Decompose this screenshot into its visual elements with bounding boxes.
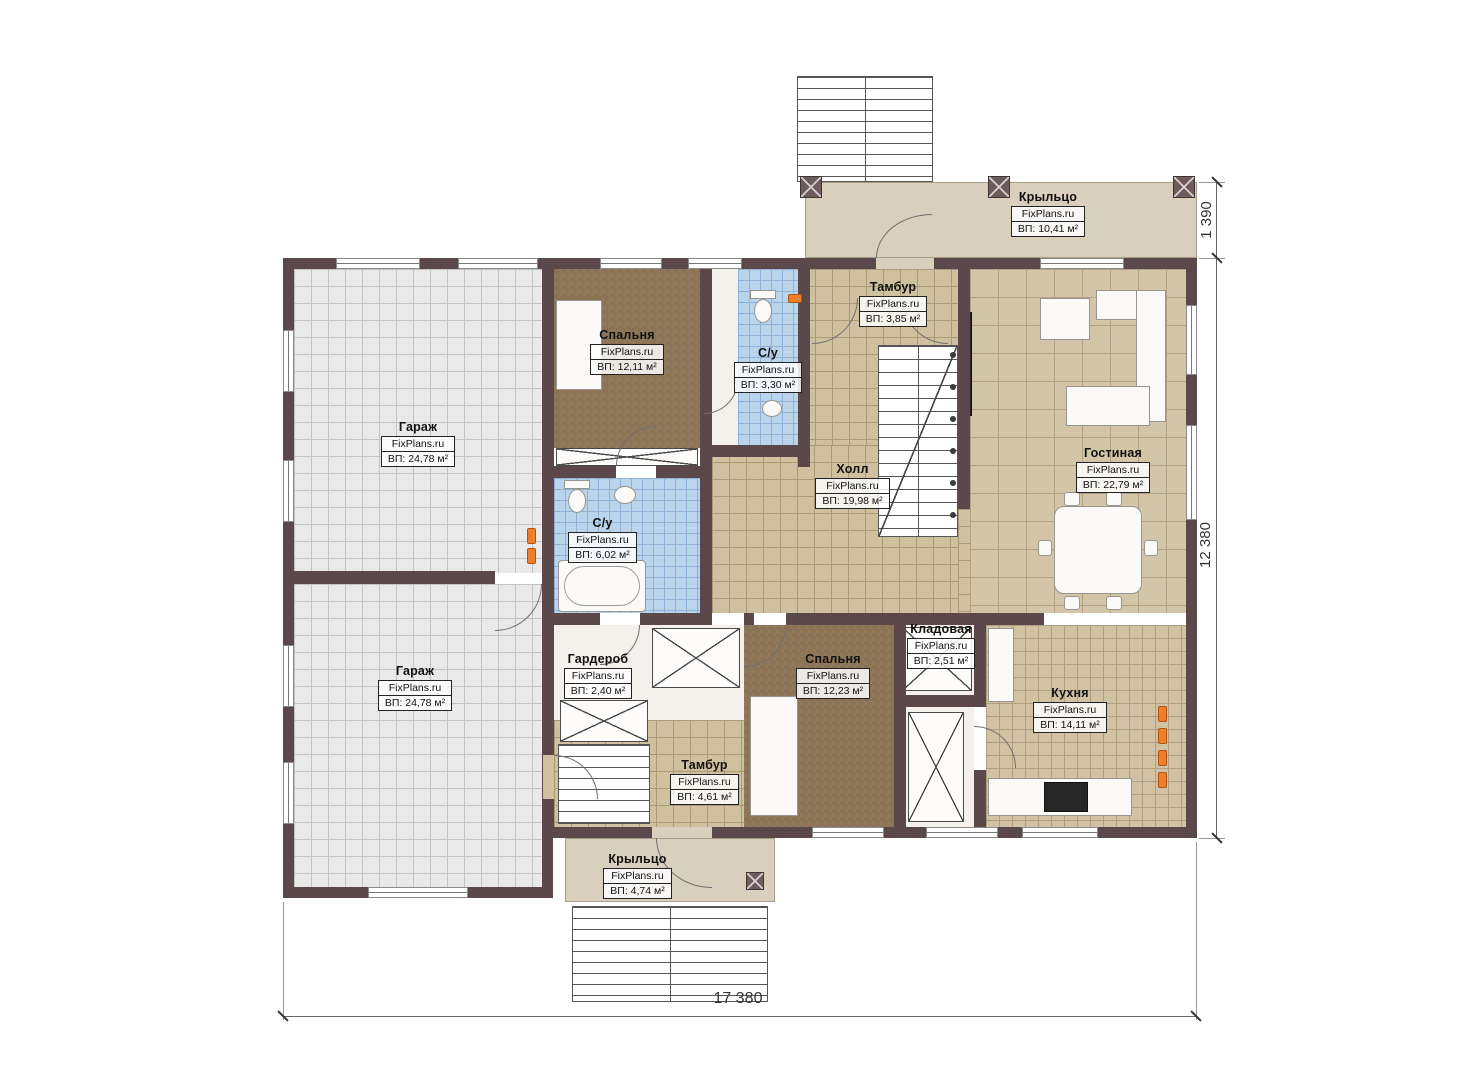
baluster-dot <box>950 480 956 486</box>
window <box>283 460 294 522</box>
wall-segment <box>543 613 600 625</box>
door-opening <box>876 258 934 269</box>
brand-text: FixPlans.ru <box>591 345 663 360</box>
extension-line <box>1196 842 1197 1020</box>
stair-rail <box>865 77 866 181</box>
room-info-box: FixPlans.ruВП: 2,40 м² <box>564 668 632 699</box>
brand-text: FixPlans.ru <box>565 669 631 684</box>
room-info-box: FixPlans.ruВП: 4,61 м² <box>670 774 738 805</box>
room-name: Тамбур <box>838 280 948 294</box>
window <box>926 827 998 838</box>
room-label-kitchen: Кухня FixPlans.ruВП: 14,11 м² <box>1012 686 1128 733</box>
room-info-box: FixPlans.ruВП: 19,98 м² <box>815 478 889 509</box>
brand-text: FixPlans.ru <box>860 297 926 312</box>
dimension-label-right: 12 380 <box>1197 510 1213 580</box>
room-area: ВП: 2,51 м² <box>908 654 974 668</box>
room-name: Кухня <box>1012 686 1128 700</box>
dimension-line <box>1216 258 1217 838</box>
wall-segment <box>986 613 1044 625</box>
wall-segment <box>744 613 754 625</box>
room-area: ВП: 24,78 м² <box>379 696 451 710</box>
room-area: ВП: 14,11 м² <box>1034 718 1106 732</box>
window <box>336 258 420 269</box>
room-name: Холл <box>800 462 905 476</box>
radiator-icon <box>1158 706 1167 722</box>
brand-text: FixPlans.ru <box>1077 463 1149 478</box>
door-opening <box>652 827 712 838</box>
porch-column-icon <box>1173 176 1195 198</box>
room-info-box: FixPlans.ruВП: 24,78 м² <box>378 680 452 711</box>
window <box>368 887 468 898</box>
room-area: ВП: 10,41 м² <box>1012 222 1084 236</box>
window <box>283 762 294 824</box>
room-area: ВП: 12,23 м² <box>797 684 869 698</box>
window <box>812 827 884 838</box>
room-name: Спальня <box>567 328 687 342</box>
brand-text: FixPlans.ru <box>908 639 974 654</box>
room-label-wc-main: С/у FixPlans.ruВП: 6,02 м² <box>550 516 655 563</box>
floor-plan-canvas: Крыльцо FixPlans.ruВП: 10,41 м² Гараж Fi… <box>0 0 1473 1080</box>
room-area: ВП: 4,74 м² <box>604 884 670 898</box>
room-label-bedroom-top: Спальня FixPlans.ruВП: 12,11 м² <box>567 328 687 375</box>
room-info-box: FixPlans.ruВП: 3,85 м² <box>859 296 927 327</box>
extension-line <box>1199 258 1225 259</box>
room-area: ВП: 6,02 м² <box>569 548 635 562</box>
window <box>283 330 294 392</box>
room-area: ВП: 24,78 м² <box>382 452 454 466</box>
porch-column-icon <box>800 176 822 198</box>
wall-segment <box>543 466 616 478</box>
room-label-garage-upper: Гараж FixPlans.ruВП: 24,78 м² <box>358 420 478 467</box>
wall-segment <box>974 770 986 827</box>
radiator-icon <box>1158 728 1167 744</box>
extension-line <box>1199 182 1225 183</box>
room-label-tambour-top: Тамбур FixPlans.ruВП: 3,85 м² <box>838 280 948 327</box>
room-area: ВП: 19,98 м² <box>816 494 888 508</box>
room-name: Гостиная <box>1053 446 1173 460</box>
brand-text: FixPlans.ru <box>1034 703 1106 718</box>
wall-segment <box>906 695 986 707</box>
wall-segment <box>656 466 712 478</box>
wall-segment <box>700 478 712 613</box>
room-label-garage-lower: Гараж FixPlans.ruВП: 24,78 м² <box>355 664 475 711</box>
brand-text: FixPlans.ru <box>816 479 888 494</box>
window <box>283 645 294 707</box>
brand-text: FixPlans.ru <box>382 437 454 452</box>
extension-line <box>283 902 284 1020</box>
wall-segment <box>640 613 712 625</box>
room-label-living: Гостиная FixPlans.ruВП: 22,79 м² <box>1053 446 1173 493</box>
room-name: Гараж <box>358 420 478 434</box>
extension-line <box>1199 838 1225 839</box>
baluster-dot <box>950 416 956 422</box>
room-info-box: FixPlans.ruВП: 10,41 м² <box>1011 206 1085 237</box>
room-label-wc-top: С/у FixPlans.ruВП: 3,30 м² <box>718 346 818 393</box>
dimension-label-bottom: 17 380 <box>688 990 788 1008</box>
dimension-line <box>283 1016 1197 1017</box>
wall-segment <box>700 269 712 478</box>
dimension-label-top-right: 1 390 <box>1198 185 1214 255</box>
radiator-icon <box>788 294 802 303</box>
wall-segment <box>958 269 970 509</box>
room-info-box: FixPlans.ruВП: 14,11 м² <box>1033 702 1107 733</box>
room-area: ВП: 22,79 м² <box>1077 478 1149 492</box>
brand-text: FixPlans.ru <box>735 363 801 378</box>
porch-column-icon <box>746 872 764 890</box>
brand-text: FixPlans.ru <box>797 669 869 684</box>
exterior-stairs-bottom <box>572 906 768 1002</box>
brand-text: FixPlans.ru <box>604 869 670 884</box>
room-info-box: FixPlans.ruВП: 22,79 м² <box>1076 462 1150 493</box>
room-info-box: FixPlans.ruВП: 3,30 м² <box>734 362 802 393</box>
window <box>600 258 662 269</box>
baluster-dot <box>950 448 956 454</box>
dimension-line <box>1216 182 1217 258</box>
room-info-box: FixPlans.ruВП: 24,78 м² <box>381 436 455 467</box>
baluster-dot <box>950 384 956 390</box>
room-info-box: FixPlans.ruВП: 12,23 м² <box>796 668 870 699</box>
room-area: ВП: 3,85 м² <box>860 312 926 326</box>
room-name: Крыльцо <box>988 190 1108 204</box>
window <box>688 258 742 269</box>
room-name: С/у <box>718 346 818 360</box>
radiator-icon <box>1158 772 1167 788</box>
brand-text: FixPlans.ru <box>569 533 635 548</box>
room-name: С/у <box>550 516 655 530</box>
room-label-wardrobe: Гардероб FixPlans.ruВП: 2,40 м² <box>544 652 652 699</box>
radiator-icon <box>1158 750 1167 766</box>
brand-text: FixPlans.ru <box>671 775 737 790</box>
room-name: Гардероб <box>544 652 652 666</box>
wall-segment <box>712 445 798 457</box>
room-label-porch-bottom: Крыльцо FixPlans.ruВП: 4,74 м² <box>580 852 695 899</box>
brand-text: FixPlans.ru <box>379 681 451 696</box>
room-label-hall: Холл FixPlans.ruВП: 19,98 м² <box>800 462 905 509</box>
room-info-box: FixPlans.ruВП: 12,11 м² <box>590 344 664 375</box>
window <box>458 258 538 269</box>
room-label-tambour-bottom: Тамбур FixPlans.ruВП: 4,61 м² <box>652 758 757 805</box>
window <box>1022 827 1098 838</box>
room-area: ВП: 3,30 м² <box>735 378 801 392</box>
room-info-box: FixPlans.ruВП: 2,51 м² <box>907 638 975 669</box>
room-name: Тамбур <box>652 758 757 772</box>
door-opening <box>543 755 554 799</box>
room-label-bedroom-bottom: Спальня FixPlans.ruВП: 12,23 м² <box>773 652 893 699</box>
baluster-dot <box>950 512 956 518</box>
stair-rail <box>670 907 671 1001</box>
room-name: Гараж <box>355 664 475 678</box>
room-area: ВП: 12,11 м² <box>591 360 663 374</box>
window <box>1186 425 1197 520</box>
window <box>1186 305 1197 375</box>
baluster-dot <box>950 352 956 358</box>
wall-segment <box>283 571 495 584</box>
room-label-pantry: Кладовая FixPlans.ruВП: 2,51 м² <box>888 622 994 669</box>
room-info-box: FixPlans.ruВП: 4,74 м² <box>603 868 671 899</box>
window <box>1040 258 1124 269</box>
exterior-stairs-top <box>797 76 933 182</box>
room-area: ВП: 2,40 м² <box>565 684 631 698</box>
room-label-porch-top: Крыльцо FixPlans.ruВП: 10,41 м² <box>988 190 1108 237</box>
room-name: Спальня <box>773 652 893 666</box>
room-area: ВП: 4,61 м² <box>671 790 737 804</box>
room-info-box: FixPlans.ruВП: 6,02 м² <box>568 532 636 563</box>
radiator-icon <box>527 528 536 544</box>
radiator-icon <box>527 548 536 564</box>
brand-text: FixPlans.ru <box>1012 207 1084 222</box>
room-name: Кладовая <box>888 622 994 636</box>
room-name: Крыльцо <box>580 852 695 866</box>
